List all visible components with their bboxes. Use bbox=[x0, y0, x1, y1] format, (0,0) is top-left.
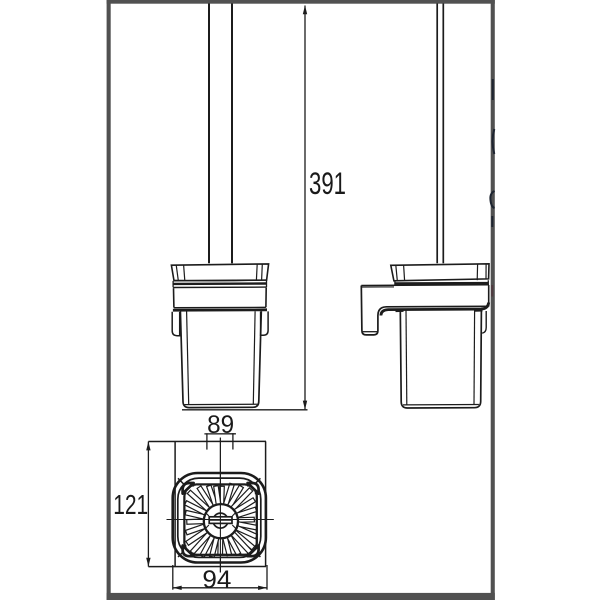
svg-text:121: 121 bbox=[113, 489, 148, 520]
svg-text:94: 94 bbox=[202, 566, 231, 594]
svg-text:89: 89 bbox=[207, 411, 234, 439]
svg-text:391: 391 bbox=[309, 165, 346, 201]
